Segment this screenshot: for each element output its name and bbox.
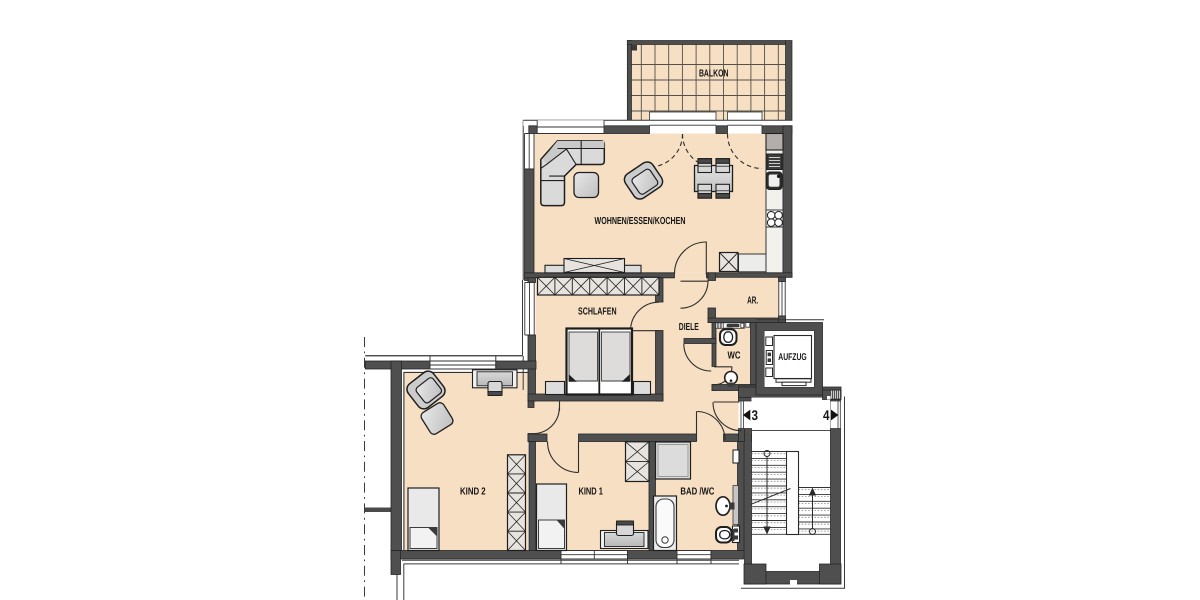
svg-text:WC: WC [728, 350, 741, 361]
svg-text:AUFZUG: AUFZUG [778, 352, 807, 363]
svg-text:WOHNEN/ESSEN/KOCHEN: WOHNEN/ESSEN/KOCHEN [595, 216, 686, 227]
svg-text:AR.: AR. [747, 295, 758, 306]
svg-text:4: 4 [823, 407, 830, 423]
svg-text:KIND 2: KIND 2 [460, 487, 486, 498]
svg-text:BALKON: BALKON [699, 69, 729, 80]
svg-text:BAD /WC: BAD /WC [680, 486, 714, 497]
svg-text:SCHLAFEN: SCHLAFEN [578, 307, 617, 318]
svg-text:KIND 1: KIND 1 [578, 486, 603, 497]
svg-text:DIELE: DIELE [679, 322, 699, 333]
svg-text:3: 3 [752, 407, 759, 423]
